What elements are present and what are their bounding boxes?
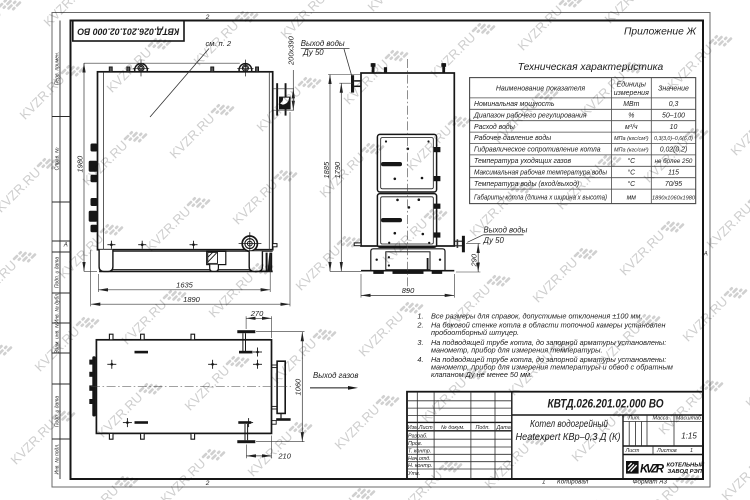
svg-text:KVZR.RU: KVZR.RU [602,0,653,26]
svg-text:Изм.: Изм. [408,425,420,431]
svg-text:KVZR.RU: KVZR.RU [206,270,257,321]
svg-text:KVZR.RU: KVZR.RU [719,453,750,500]
svg-text:115: 115 [668,169,679,176]
svg-text:1: 1 [542,479,546,486]
svg-text:манометр, прибор для измерения: манометр, прибор для измерения температу… [431,346,603,355]
svg-text:м³/ч: м³/ч [625,124,638,131]
svg-text:Приложение Ж: Приложение Ж [624,26,697,38]
svg-text:пробоотборный штуцер.: пробоотборный штуцер. [431,328,519,337]
svg-text:Дата: Дата [496,425,511,431]
svg-text:КОТЕЛЬНЫЙ: КОТЕЛЬНЫЙ [667,460,706,468]
svg-text:°С: °С [627,157,636,165]
svg-text:измерения: измерения [614,90,649,97]
svg-text:Температура уходящих газов: Температура уходящих газов [474,157,572,165]
svg-text:№ докум.: № докум. [441,425,465,431]
svg-text:Подп.: Подп. [476,425,490,431]
svg-text:Листов: Листов [656,448,677,454]
svg-text:Выход воды: Выход воды [484,226,528,235]
svg-text:Номинальная мощность: Номинальная мощность [474,101,555,108]
svg-text:Ду 50: Ду 50 [302,48,324,57]
svg-text:KVZR.RU: KVZR.RU [515,3,566,54]
svg-text:KVZR.RU: KVZR.RU [308,495,359,500]
svg-text:Инв. № дубл.: Инв. № дубл. [54,293,60,324]
svg-text:Т. контр.: Т. контр. [408,449,431,455]
svg-text:2: 2 [205,480,210,487]
svg-text:3.: 3. [417,338,423,347]
svg-text:KVZR.RU: KVZR.RU [293,243,344,294]
svg-text:МВт: МВт [623,101,639,108]
svg-text:Ду 50: Ду 50 [483,236,505,245]
svg-text:Формат А3: Формат А3 [633,479,668,486]
svg-text:А: А [703,252,708,258]
svg-text:KVZR.RU: KVZR.RU [665,42,716,93]
svg-text:°С: °С [627,180,636,188]
svg-text:Копировал: Копировал [557,479,589,486]
svg-text:Разраб.: Разраб. [408,433,428,439]
svg-text:1: 1 [690,448,693,454]
svg-text:290: 290 [469,253,478,267]
svg-text:KVZR.RU: KVZR.RU [332,402,383,453]
svg-text:Гидравлическое сопротивление к: Гидравлическое сопротивление котла [474,146,601,154]
svg-text:Справ. №: Справ. № [54,147,60,170]
svg-text:0,3: 0,3 [669,101,679,108]
svg-text:KVZR.RU: KVZR.RU [728,108,750,159]
svg-text:1980: 1980 [76,155,85,173]
svg-text:KVZR: KVZR [640,464,665,476]
svg-text:KVZR.RU: KVZR.RU [656,387,707,438]
svg-text:°С: °С [627,168,636,176]
svg-text:KVZR.RU: KVZR.RU [530,255,581,306]
svg-text:Выход газов: Выход газов [313,371,358,380]
svg-text:KVZR.RU: KVZR.RU [71,483,122,500]
svg-text:Утв.: Утв. [407,471,420,477]
svg-text:890: 890 [402,286,415,295]
svg-text:KVZR.RU: KVZR.RU [128,0,179,2]
svg-text:1635: 1635 [176,281,194,290]
svg-text:KVZR.RU: KVZR.RU [356,309,407,360]
svg-text:70/95: 70/95 [665,181,682,188]
svg-text:KVZR.RU: KVZR.RU [419,375,470,426]
svg-text:KVZR.RU: KVZR.RU [8,417,59,468]
svg-text:1060: 1060 [294,378,303,396]
svg-text:2: 2 [205,14,210,21]
svg-text:Нач.отд.: Нач.отд. [408,456,431,462]
svg-text:Инв. № подл.: Инв. № подл. [54,443,60,474]
svg-text:KVZR.RU: KVZR.RU [0,165,43,216]
svg-text:КВТД.026.201.02.000 ВО: КВТД.026.201.02.000 ВО [548,398,664,411]
svg-text:1890х1060х1980: 1890х1060х1980 [652,195,696,201]
svg-text:4.: 4. [417,355,423,364]
svg-text:KVZR.RU: KVZR.RU [617,228,668,279]
svg-text:2.: 2. [416,321,423,330]
svg-text:Пров.: Пров. [408,441,422,447]
svg-text:KVZR.RU: KVZR.RU [0,258,19,309]
svg-text:КВТД.026.201.02.000 ВО: КВТД.026.201.02.000 ВО [77,25,179,36]
svg-text:%: % [628,112,634,119]
svg-text:Лист: Лист [625,448,640,454]
svg-text:KVZR.RU: KVZR.RU [158,456,209,500]
svg-text:Н. контр.: Н. контр. [408,463,432,469]
svg-text:50–100: 50–100 [662,112,685,119]
svg-text:KVZR.RU: KVZR.RU [191,18,242,69]
svg-text:KVZR.RU: KVZR.RU [0,6,4,57]
svg-text:1:15: 1:15 [681,432,697,441]
svg-text:KVZR.RU: KVZR.RU [482,441,533,492]
svg-text:10: 10 [670,124,678,131]
svg-text:Лист: Лист [418,425,433,431]
svg-text:1.: 1. [417,311,423,320]
svg-text:Рабочее давление воды: Рабочее давление воды [474,134,551,142]
svg-text:KVZR.RU: KVZR.RU [743,360,750,411]
svg-text:Выход воды: Выход воды [301,39,345,48]
svg-text:KVZR.RU: KVZR.RU [680,294,731,345]
svg-text:МПа (кгс/см²): МПа (кгс/см²) [614,148,649,154]
svg-text:270: 270 [250,309,264,318]
svg-text:мм: мм [627,194,637,201]
svg-text:МПа (кгс/см²): МПа (кгс/см²) [614,136,649,142]
svg-text:KVZR.RU: KVZR.RU [41,0,92,29]
svg-text:1890: 1890 [183,295,201,304]
svg-text:А: А [63,243,68,249]
